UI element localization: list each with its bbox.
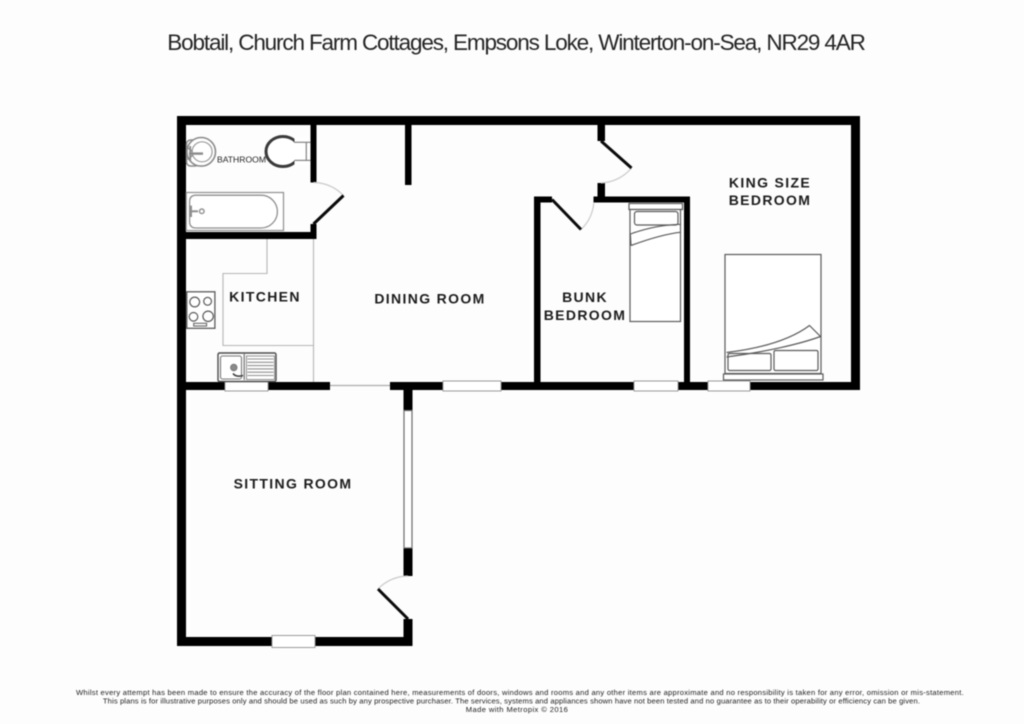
svg-text:Bobtail, Church Farm Cottages,: Bobtail, Church Farm Cottages, Empsons L…: [167, 30, 865, 55]
svg-text:BEDROOM: BEDROOM: [544, 307, 627, 323]
svg-text:BUNK: BUNK: [562, 289, 608, 305]
svg-text:BEDROOM: BEDROOM: [729, 192, 812, 208]
svg-text:KING SIZE: KING SIZE: [729, 175, 811, 191]
svg-text:BATHROOM: BATHROOM: [217, 154, 266, 164]
svg-text:DINING ROOM: DINING ROOM: [374, 291, 485, 307]
svg-text:KITCHEN: KITCHEN: [229, 289, 301, 305]
svg-text:Made with Metropix © 2016: Made with Metropix © 2016: [466, 705, 569, 714]
svg-text:SITTING ROOM: SITTING ROOM: [234, 476, 353, 492]
